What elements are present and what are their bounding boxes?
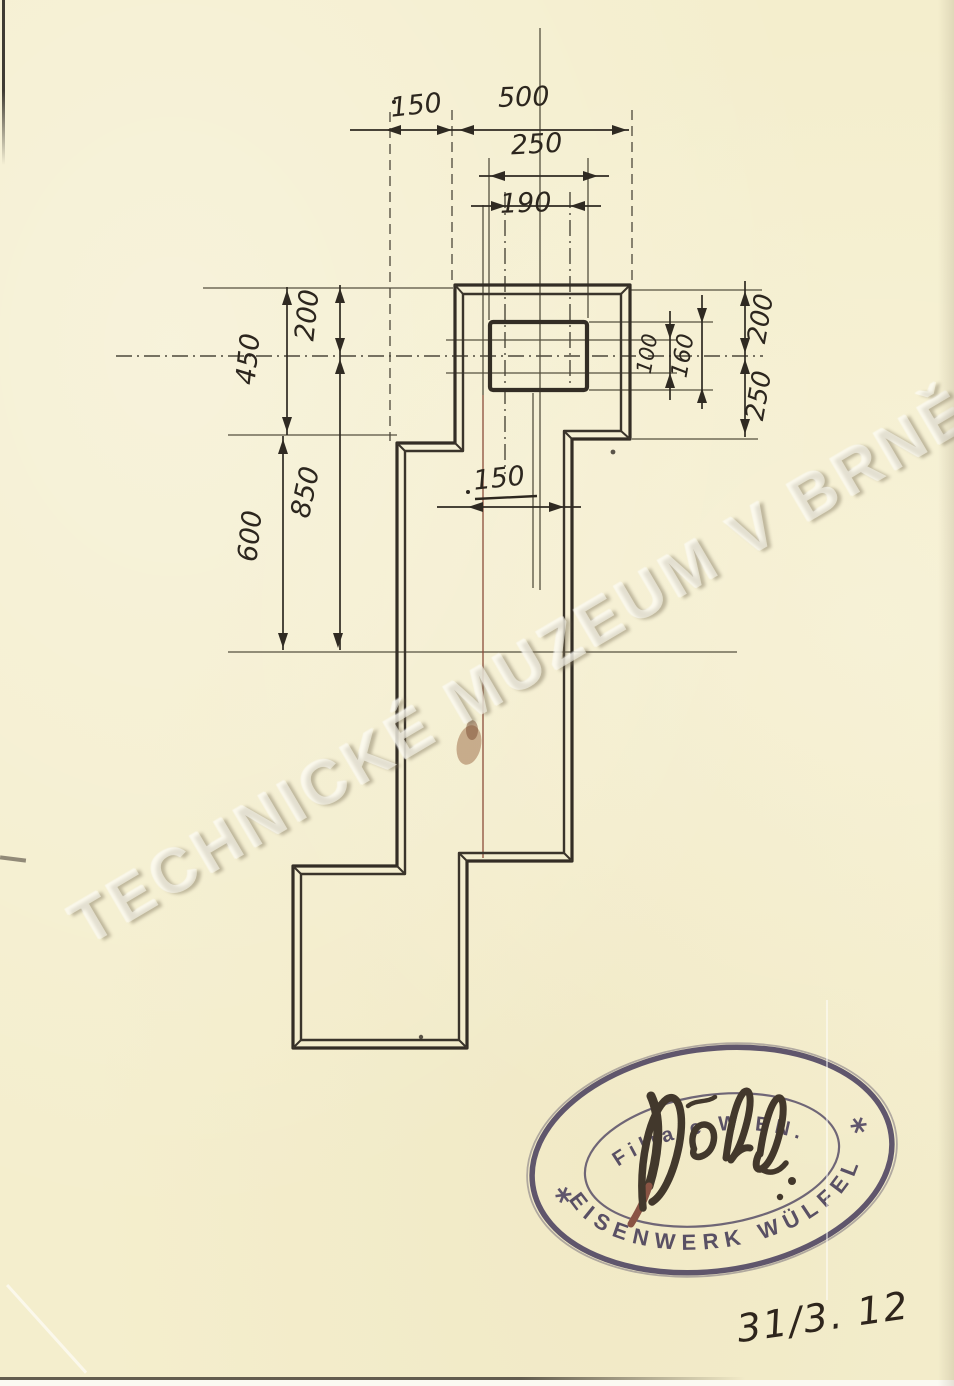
ink-smudge: [453, 720, 485, 767]
scan-edge-left: [2, 0, 5, 165]
dim-label-mid-step: 150: [472, 460, 527, 496]
dim-label-recess-height: 100: [632, 332, 663, 376]
dim-label-recess-width: 190: [499, 187, 552, 220]
dim-label-pocket-height: 160: [666, 332, 699, 380]
rubber-stamp: EISENWERK WÜLFEL Filiale WIEN.: [512, 1020, 912, 1300]
part-outline: [293, 285, 630, 1048]
dim-label-left-upper: 200: [289, 288, 325, 343]
asterisk-icon: [850, 1117, 868, 1133]
stamp-arc-top-text: EISENWERK WÜLFEL: [562, 1148, 875, 1274]
scanned-technical-drawing: 150 500 250 190 150 450 200 850 600 100 …: [0, 0, 954, 1386]
handwritten-date: 31/3. 12: [734, 1283, 912, 1351]
scan-edge-bottom-white: [0, 1380, 954, 1386]
dim-label-top-step: 150: [389, 87, 444, 123]
chamfer-ticks: [293, 285, 630, 1048]
svg-text:EISENWERK WÜLFEL: EISENWERK WÜLFEL: [562, 1148, 875, 1274]
technical-drawing-canvas: 150 500 250 190 150 450 200 850 600 100 …: [0, 0, 954, 1386]
dim-label-left-lower: 600: [232, 509, 268, 564]
dim-label-top-width: 500: [497, 81, 550, 114]
dim-label-left-total: 450: [230, 332, 266, 387]
scan-edge-right: [938, 0, 954, 1386]
dim-label-left-mid: 850: [285, 464, 326, 521]
dim-label-pocket-width: 250: [510, 128, 563, 162]
paper-crease-stamp: [826, 1000, 828, 1300]
signature: [631, 1091, 796, 1224]
